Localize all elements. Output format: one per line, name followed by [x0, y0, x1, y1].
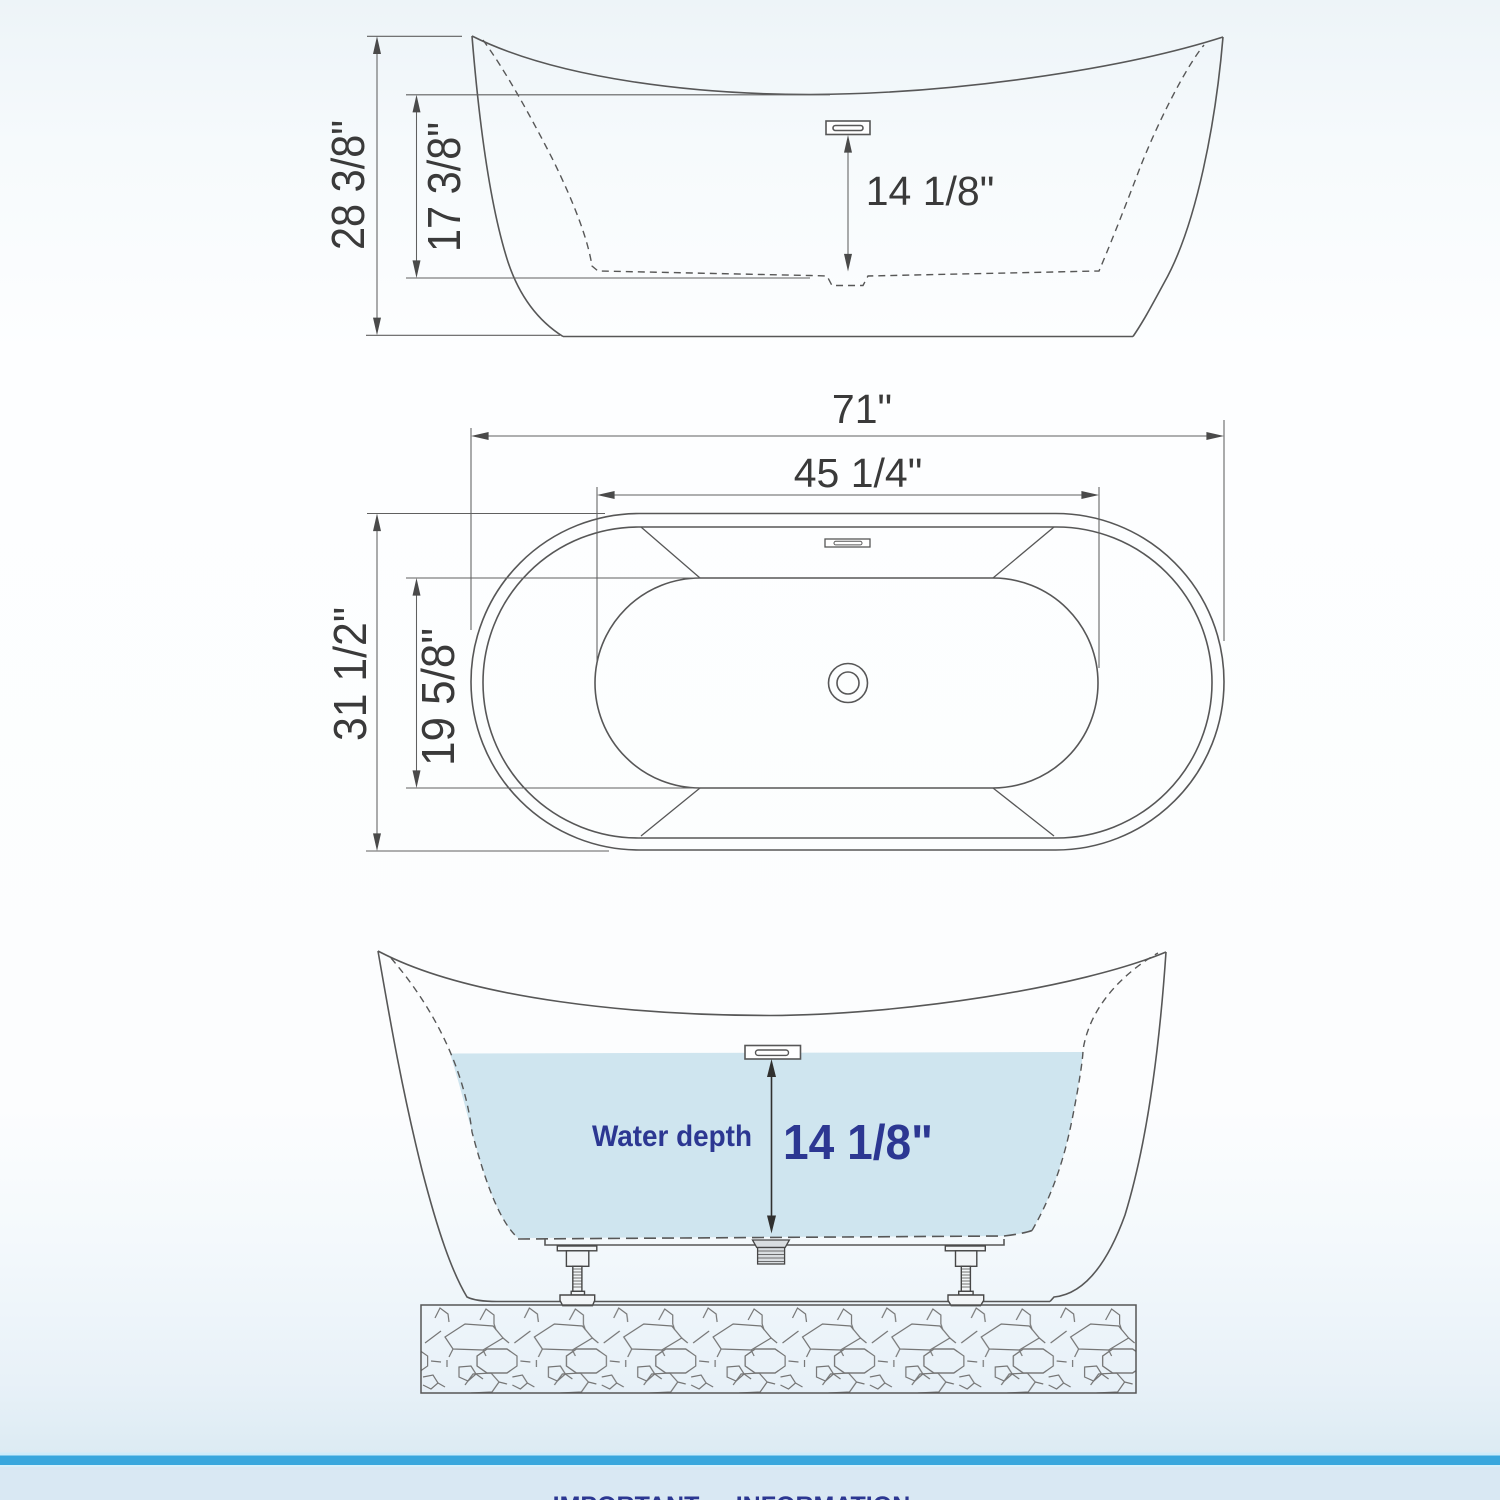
svg-text:IMPORTANT: IMPORTANT [553, 1492, 700, 1500]
svg-text:45 1/4": 45 1/4" [794, 450, 923, 496]
svg-text:19 5/8": 19 5/8" [412, 628, 464, 766]
svg-text:INFORMATION: INFORMATION [736, 1492, 911, 1500]
svg-text:71": 71" [832, 386, 892, 432]
svg-text:31 1/2": 31 1/2" [324, 607, 376, 741]
svg-text:28 3/8": 28 3/8" [322, 120, 374, 250]
svg-text:17 3/8": 17 3/8" [418, 122, 470, 252]
svg-text:Water depth: Water depth [592, 1120, 752, 1153]
svg-text:14 1/8": 14 1/8" [866, 168, 995, 214]
svg-text:14 1/8": 14 1/8" [783, 1116, 933, 1170]
